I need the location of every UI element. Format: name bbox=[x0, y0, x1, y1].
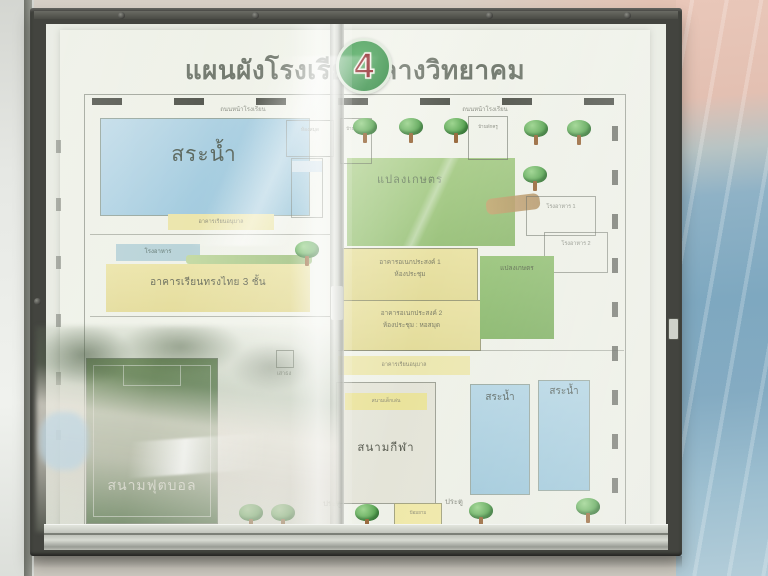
screw-icon bbox=[486, 12, 493, 19]
screw-icon bbox=[252, 12, 259, 19]
frame-top-face bbox=[34, 11, 678, 19]
photo-of-school-map-board: แผนผังโรงเรียนกลางวิทยาคม ถนนหน้าโรงเรีย… bbox=[0, 0, 768, 576]
screw-icon bbox=[34, 298, 41, 305]
screw-icon bbox=[624, 12, 631, 19]
screw-icon bbox=[118, 12, 125, 19]
case-latch bbox=[668, 318, 679, 340]
wall-right-blue bbox=[676, 0, 768, 576]
glass-sheen bbox=[46, 24, 666, 526]
case-bottom-sill bbox=[44, 524, 668, 550]
case-shadow bbox=[34, 556, 682, 568]
